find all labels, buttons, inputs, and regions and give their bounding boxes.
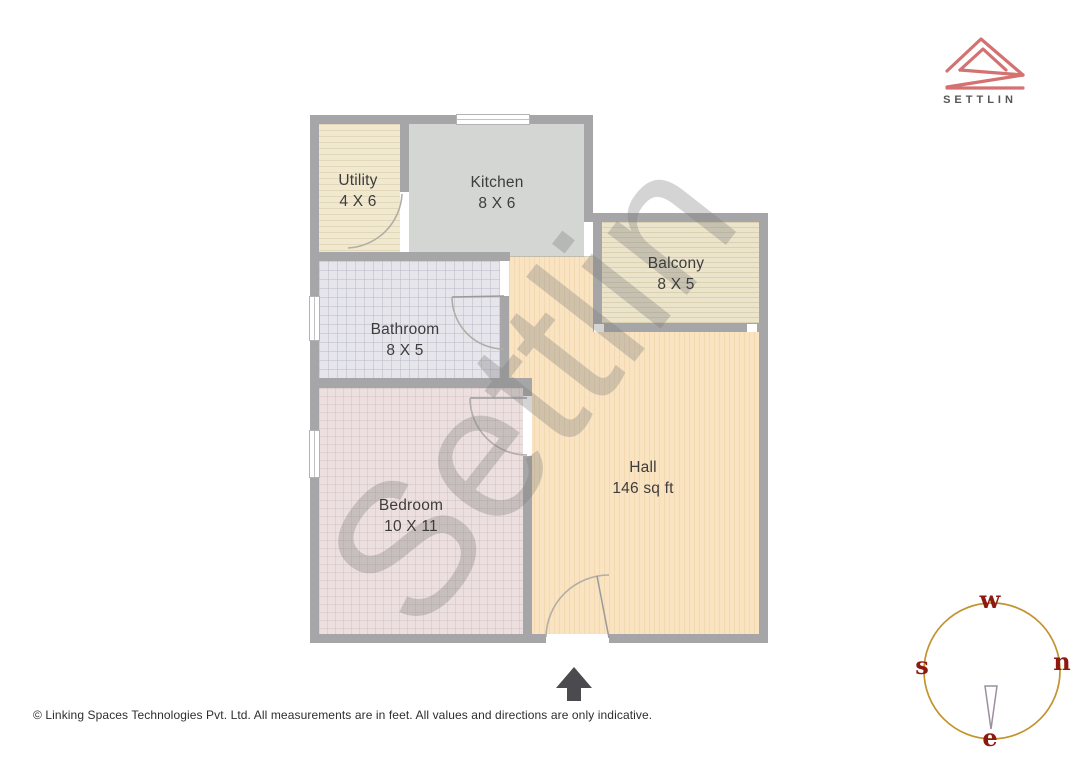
compass-label-south: s [909, 654, 935, 678]
copyright-disclaimer: © Linking Spaces Technologies Pvt. Ltd. … [33, 708, 652, 722]
compass-label-west: w [977, 588, 1003, 612]
settlin-logo-icon [0, 0, 1080, 758]
settlin-brand-text: SETTLIN [920, 94, 1040, 106]
compass-label-north: n [1049, 650, 1075, 674]
compass-label-east: e [977, 726, 1003, 750]
